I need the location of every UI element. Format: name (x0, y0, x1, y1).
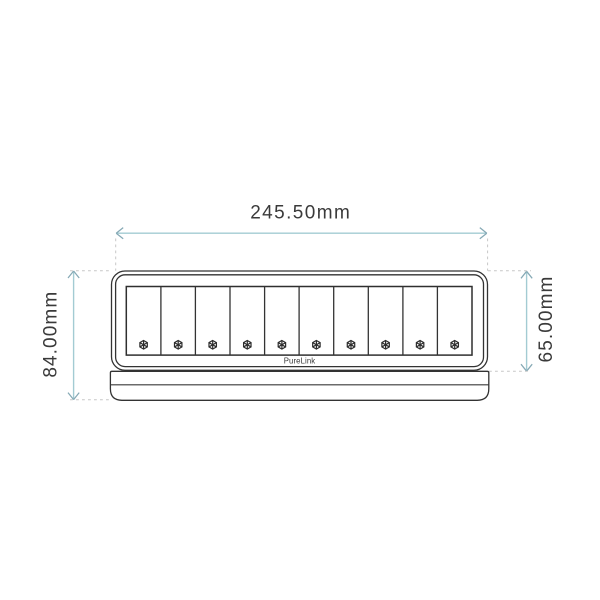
svg-text:245.50mm: 245.50mm (250, 203, 351, 224)
svg-text:65.00mm: 65.00mm (536, 276, 557, 363)
svg-text:84.00mm: 84.00mm (41, 291, 62, 378)
svg-text:PureLink: PureLink (284, 356, 316, 365)
